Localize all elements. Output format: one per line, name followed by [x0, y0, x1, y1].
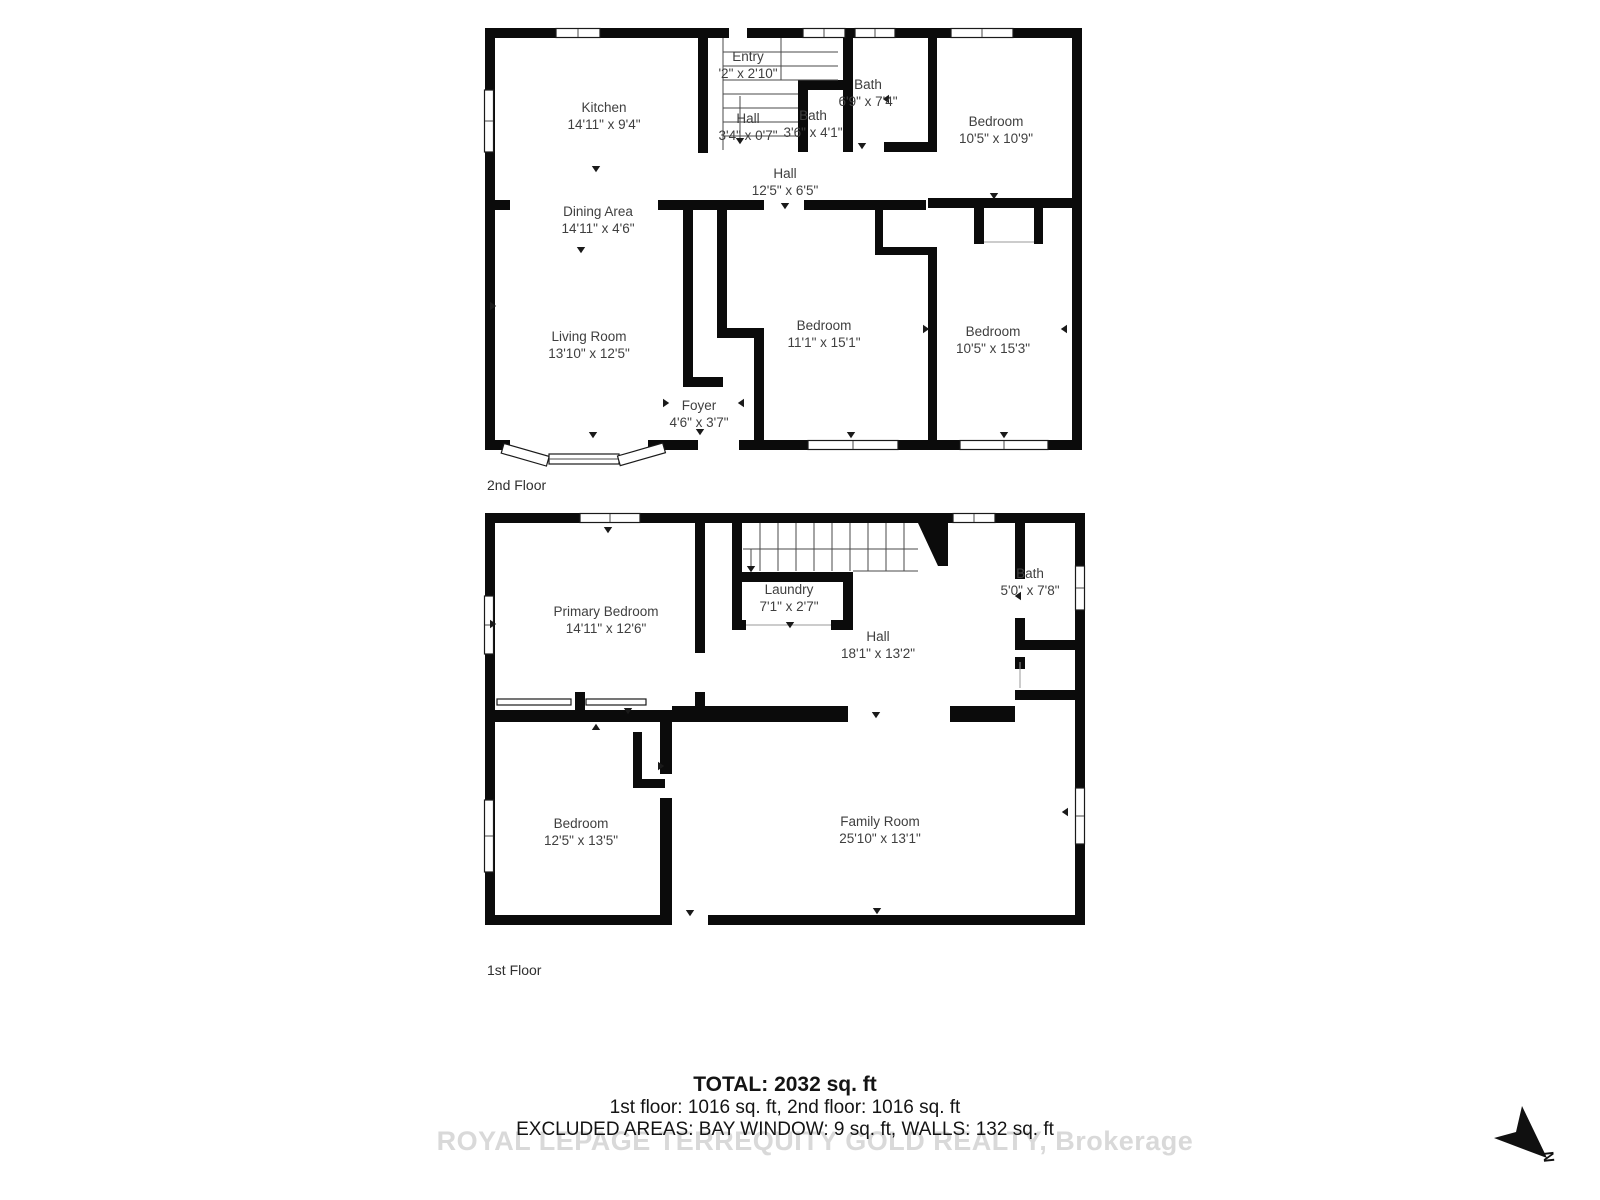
north-arrow-glyph [1494, 1106, 1547, 1158]
room-name: Hall [718, 110, 777, 127]
room-dims: 7'1" x 2'7" [759, 598, 818, 615]
room-label-primary-bedroom: Primary Bedroom 14'11" x 12'6" [553, 603, 658, 637]
room-label-entry: Entry '2" x 2'10" [718, 48, 777, 82]
room-dims: 3'4" x 0'7" [718, 127, 777, 144]
room-dims: 12'5" x 13'5" [544, 832, 618, 849]
north-label: N [1539, 1151, 1557, 1164]
room-label-bath-first: Bath 5'0" x 7'8" [1000, 565, 1059, 599]
room-dims: 4'6" x 3'7" [669, 414, 728, 431]
room-dims: 25'10" x 13'1" [839, 830, 921, 847]
room-name: Bedroom [959, 113, 1033, 130]
room-label-bedroom-center: Bedroom 11'1" x 15'1" [787, 317, 860, 351]
room-name: Primary Bedroom [553, 603, 658, 620]
second-floor-plan [485, 28, 1083, 466]
room-dims: 13'10" x 12'5" [548, 345, 630, 362]
room-dims: 3'6" x 4'1" [783, 124, 842, 141]
room-label-bath-large: Bath 6'9" x 7'4" [838, 76, 897, 110]
second-floor-windows [485, 29, 1049, 450]
room-name: Dining Area [561, 203, 634, 220]
room-dims: 14'11" x 12'6" [553, 620, 658, 637]
room-name: Laundry [759, 581, 818, 598]
room-dims: 14'11" x 4'6" [561, 220, 634, 237]
room-label-bedroom-topright: Bedroom 10'5" x 10'9" [959, 113, 1033, 147]
room-name: Bath [1000, 565, 1059, 582]
room-name: Hall [841, 628, 915, 645]
room-label-hall-small: Hall 3'4" x 0'7" [718, 110, 777, 144]
room-name: Bedroom [956, 323, 1030, 340]
room-dims: '2" x 2'10" [718, 65, 777, 82]
room-name: Hall [752, 165, 819, 182]
second-floor-caption: 2nd Floor [487, 477, 546, 493]
room-name: Kitchen [567, 99, 640, 116]
room-label-bath-small: Bath 3'6" x 4'1" [783, 107, 842, 141]
room-dims: 10'5" x 10'9" [959, 130, 1033, 147]
room-label-hall-first: Hall 18'1" x 13'2" [841, 628, 915, 662]
room-name: Entry [718, 48, 777, 65]
sliding-closet-doors [497, 699, 646, 705]
floor-plan-page: N Kitchen 14'11" x 9'4" Entry '2" x 2'10… [0, 0, 1600, 1200]
room-name: Bath [838, 76, 897, 93]
floor-areas-line: 1st floor: 1016 sq. ft, 2nd floor: 1016 … [516, 1097, 1054, 1119]
room-label-laundry: Laundry 7'1" x 2'7" [759, 581, 818, 615]
excluded-areas-line: EXCLUDED AREAS: BAY WINDOW: 9 sq. ft, WA… [516, 1119, 1054, 1141]
north-arrow: N [1494, 1106, 1557, 1163]
second-floor-walls [485, 28, 1082, 450]
total-area-line: TOTAL: 2032 sq. ft [516, 1072, 1054, 1097]
room-dims: 12'5" x 6'5" [752, 182, 819, 199]
room-name: Family Room [839, 813, 921, 830]
room-dims: 5'0" x 7'8" [1000, 582, 1059, 599]
first-floor-stairs [743, 523, 918, 572]
room-label-bedroom-first: Bedroom 12'5" x 13'5" [544, 815, 618, 849]
room-dims: 18'1" x 13'2" [841, 645, 915, 662]
room-label-dining-area: Dining Area 14'11" x 4'6" [561, 203, 634, 237]
room-name: Bedroom [544, 815, 618, 832]
room-label-foyer: Foyer 4'6" x 3'7" [669, 397, 728, 431]
room-label-bedroom-right: Bedroom 10'5" x 15'3" [956, 323, 1030, 357]
bay-window [501, 443, 665, 466]
room-label-kitchen: Kitchen 14'11" x 9'4" [567, 99, 640, 133]
room-label-family-room: Family Room 25'10" x 13'1" [839, 813, 921, 847]
room-name: Living Room [548, 328, 630, 345]
room-name: Bath [783, 107, 842, 124]
room-dims: 10'5" x 15'3" [956, 340, 1030, 357]
area-summary: TOTAL: 2032 sq. ft 1st floor: 1016 sq. f… [516, 1072, 1054, 1141]
room-label-living-room: Living Room 13'10" x 12'5" [548, 328, 630, 362]
first-floor-caption: 1st Floor [487, 962, 541, 978]
room-name: Bedroom [787, 317, 860, 334]
first-floor-walls [485, 513, 1085, 925]
room-label-hall: Hall 12'5" x 6'5" [752, 165, 819, 199]
room-dims: 11'1" x 15'1" [787, 334, 860, 351]
chimney [918, 523, 948, 566]
room-dims: 14'11" x 9'4" [567, 116, 640, 133]
room-name: Foyer [669, 397, 728, 414]
room-dims: 6'9" x 7'4" [838, 93, 897, 110]
first-floor-plan [485, 513, 1086, 925]
